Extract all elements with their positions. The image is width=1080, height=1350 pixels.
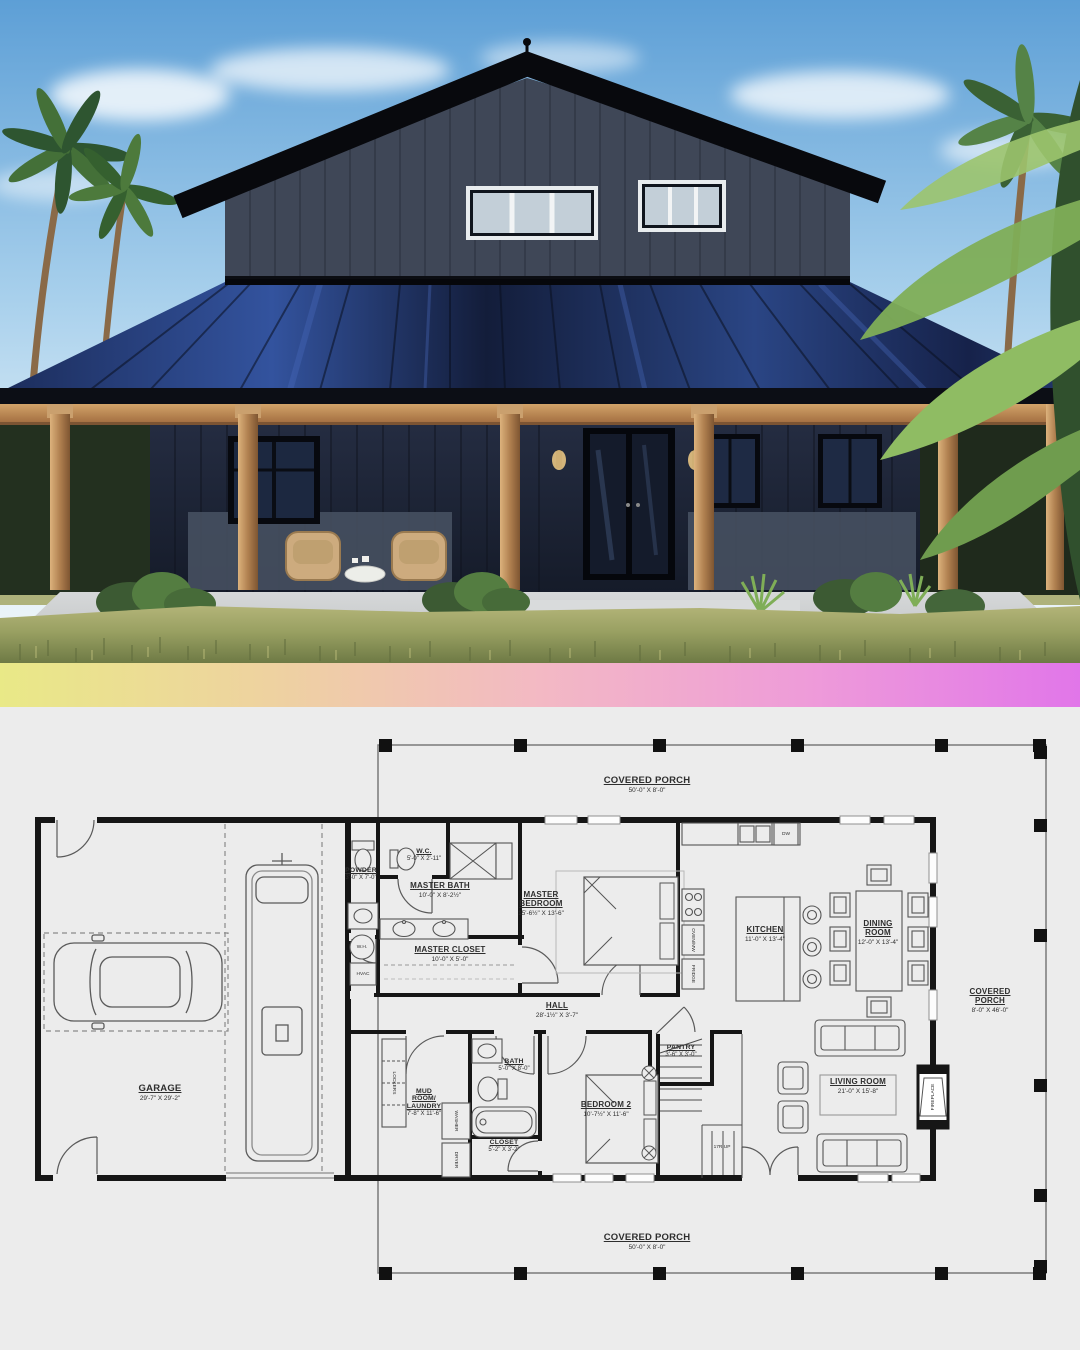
fireplace-label: FIREPLACE bbox=[931, 1084, 936, 1111]
room-label-kitchen: KITCHEN 11'-0" X 13'-4" bbox=[745, 926, 785, 943]
master-bed bbox=[556, 871, 684, 973]
room-name: W.C. bbox=[407, 848, 441, 855]
dryer-label: DRYER bbox=[454, 1152, 459, 1169]
room-name: COVERED PORCH bbox=[604, 1233, 691, 1243]
roof-fascia bbox=[0, 388, 1080, 404]
garage-interior bbox=[44, 824, 322, 1172]
dishwasher-label: DW bbox=[782, 832, 790, 837]
rv-trailer bbox=[246, 853, 318, 1161]
room-label-garage: GARAGE 29'-7" X 29'-2" bbox=[139, 1084, 182, 1102]
room-dims: 12'-0" X 13'-4" bbox=[854, 939, 902, 946]
water-heater-label: W.H. bbox=[357, 945, 367, 950]
room-name: CLOSET bbox=[488, 1139, 519, 1146]
fridge-label: FRIDGE bbox=[691, 965, 696, 983]
room-label-master-closet: MASTER CLOSET 10'-0" X 5'-0" bbox=[414, 946, 485, 963]
room-label-dining-room: DINING ROOM 12'-0" X 13'-4" bbox=[854, 920, 902, 946]
room-dims: 5'-2" X 3'-2" bbox=[488, 1147, 519, 1154]
room-name: MUD ROOM/ LAUNDRY bbox=[405, 1088, 443, 1110]
window-right-2 bbox=[818, 434, 882, 508]
room-dims: 21'-0" X 15'-8" bbox=[830, 1088, 886, 1095]
room-name: MASTER BATH bbox=[410, 882, 470, 891]
room-dims: 11'-0" X 13'-4" bbox=[745, 936, 785, 943]
room-label-bath: BATH 5'-0" X 8'-0" bbox=[498, 1058, 529, 1073]
room-name: KITCHEN bbox=[745, 926, 785, 935]
room-name: LIVING ROOM bbox=[830, 1078, 886, 1087]
room-name: BATH bbox=[498, 1058, 529, 1065]
washer-label: WASHER bbox=[454, 1111, 459, 1132]
porch-left-shadow bbox=[0, 425, 152, 595]
room-name: PANTRY bbox=[665, 1044, 696, 1051]
room-dims: 50'-0" X 8'-0" bbox=[604, 787, 691, 794]
room-label-covered-porch-right: COVERED PORCH 8'-0" X 46'-0" bbox=[962, 988, 1018, 1014]
roof-finial-ball bbox=[523, 38, 531, 46]
lockers-label: LOCKERS bbox=[392, 1072, 397, 1095]
meadow-grass bbox=[0, 606, 1080, 663]
room-label-bedroom-2: BEDROOM 2 10'-7½" X 11'-6" bbox=[581, 1101, 631, 1118]
room-dims: 7'-8" X 11'-6" bbox=[405, 1111, 443, 1118]
room-label-covered-porch-bottom: COVERED PORCH 50'-0" X 8'-0" bbox=[604, 1233, 691, 1251]
room-label-pantry: PANTRY 3'-6" X 3'-0" bbox=[665, 1044, 696, 1059]
post-image: COVERED PORCH 50'-0" X 8'-0" COVERED POR… bbox=[0, 0, 1080, 1350]
room-name: GARAGE bbox=[139, 1084, 182, 1094]
living-furniture bbox=[778, 1020, 907, 1172]
room-label-covered-porch-top: COVERED PORCH 50'-0" X 8'-0" bbox=[604, 776, 691, 794]
room-dims: 3'-0" X 7'-0" bbox=[345, 875, 377, 882]
room-name: MASTER CLOSET bbox=[414, 946, 485, 955]
room-label-closet: CLOSET 5'-2" X 3'-2" bbox=[488, 1139, 519, 1154]
room-name: DINING ROOM bbox=[854, 920, 902, 938]
oven-label: OVEN/MW bbox=[691, 928, 696, 951]
room-dims: 10'-7½" X 11'-6" bbox=[581, 1111, 631, 1118]
hvac-label: HVAC bbox=[357, 972, 370, 977]
gradient-divider bbox=[0, 663, 1080, 707]
house-photo-scene bbox=[0, 0, 1080, 663]
kitchen-fixtures bbox=[682, 823, 821, 1001]
room-name: COVERED PORCH bbox=[962, 988, 1018, 1006]
glass-entry-door bbox=[583, 428, 675, 580]
room-dims: 15'-6½" X 13'-6" bbox=[508, 910, 574, 917]
room-dims: 10'-0" X 5'-0" bbox=[414, 956, 485, 963]
room-label-wc: W.C. 5'-0" X 2'-11" bbox=[407, 848, 441, 863]
car bbox=[54, 935, 222, 1029]
clerestory-window-right bbox=[640, 182, 724, 230]
room-label-living-room: LIVING ROOM 21'-0" X 15'-8" bbox=[830, 1078, 886, 1095]
room-name: POWDER bbox=[345, 867, 377, 874]
bath-fixtures bbox=[472, 1039, 536, 1137]
room-label-mud-room-laundry: MUD ROOM/ LAUNDRY 7'-8" X 11'-6" bbox=[405, 1088, 443, 1118]
room-name: HALL bbox=[536, 1002, 578, 1011]
room-label-master-bedroom: MASTER BEDROOM 15'-6½" X 13'-6" bbox=[508, 891, 574, 917]
room-dims: 8'-0" X 46'-0" bbox=[962, 1007, 1018, 1014]
house-photo bbox=[0, 0, 1080, 663]
room-dims: 29'-7" X 29'-2" bbox=[139, 1095, 182, 1102]
room-label-master-bath: MASTER BATH 10'-0" X 8'-2½" bbox=[410, 882, 470, 899]
room-dims: 10'-0" X 8'-2½" bbox=[410, 892, 470, 899]
room-name: COVERED PORCH bbox=[604, 776, 691, 786]
room-dims: 50'-0" X 8'-0" bbox=[604, 1244, 691, 1251]
room-label-hall: HALL 28'-1½" X 3'-7" bbox=[536, 1002, 578, 1019]
room-dims: 28'-1½" X 3'-7" bbox=[536, 1012, 578, 1019]
floor-plan: COVERED PORCH 50'-0" X 8'-0" COVERED POR… bbox=[0, 707, 1080, 1350]
room-name: BEDROOM 2 bbox=[581, 1101, 631, 1110]
room-dims: 3'-6" X 3'-0" bbox=[665, 1052, 696, 1059]
floor-plan-drawing bbox=[0, 707, 1080, 1350]
room-dims: 5'-0" X 2'-11" bbox=[407, 856, 441, 863]
stairs-label: 17R UP bbox=[714, 1145, 731, 1150]
room-name: MASTER BEDROOM bbox=[508, 891, 574, 909]
room-dims: 5'-0" X 8'-0" bbox=[498, 1066, 529, 1073]
room-label-powder: POWDER 3'-0" X 7'-0" bbox=[345, 867, 377, 882]
clerestory-window-left bbox=[468, 188, 596, 238]
